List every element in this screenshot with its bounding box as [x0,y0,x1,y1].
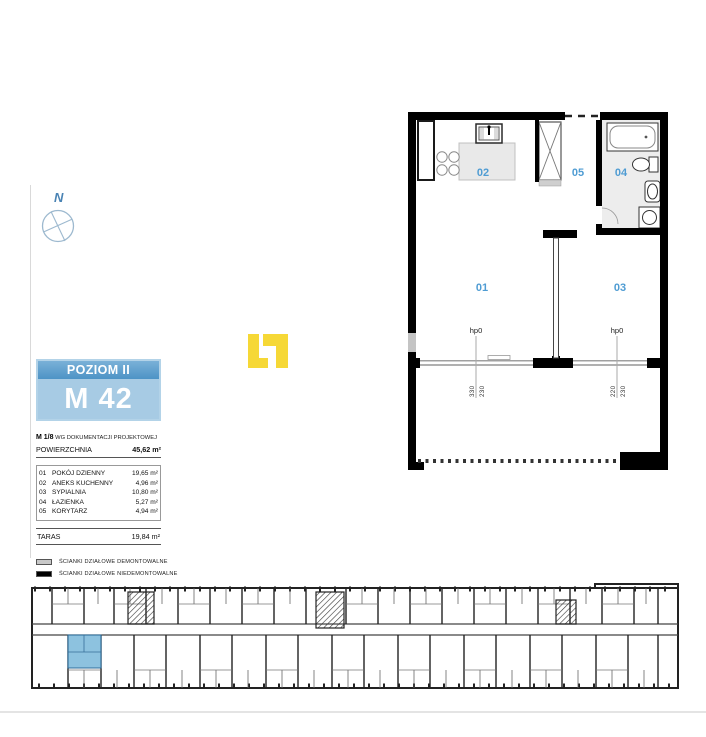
toilet [633,157,659,172]
bottom-divider-line [0,711,706,713]
partition-01-03 [554,238,559,358]
dim-label: 330 [469,385,476,397]
table-row: 05 KORYTARZ 4,94 m² [39,507,158,517]
wardrobe [539,122,561,186]
room-label-02: 02 [477,167,489,179]
terrace-label: TARAS [37,532,60,541]
hp-label: hp0 [611,326,624,335]
washbasin [645,181,660,202]
room-label-04: 04 [615,167,628,179]
room-label-05: 05 [572,167,584,179]
table-row: 01 POKÓJ DZIENNY 19,65 m² [39,469,158,479]
room-no: 02 [39,479,52,489]
room-name: SYPIALNIA [52,488,132,498]
room-name: ANEKS KUCHENNY [52,479,136,489]
doc-note: M 1/8 WG DOKUMENTACJI PROJEKTOWEJ [36,434,161,441]
doc-note-text: WG DOKUMENTACJI PROJEKTOWEJ [54,435,158,441]
room-area: 5,27 m² [136,498,158,508]
sink [476,124,502,143]
room-name: ŁAZIENKA [52,498,136,508]
highlighted-unit-m42 [68,635,101,668]
window-mark-1: hp0 330 230 [469,326,486,398]
stove [437,152,459,175]
room-no: 01 [39,469,52,479]
rooms-table: 01 POKÓJ DZIENNY 19,65 m² 02 ANEKS KUCHE… [36,465,161,521]
total-area-value: 45,62 m² [132,445,161,454]
dim-label: 230 [479,385,486,397]
legend-label: ŚCIANKI DZIAŁOWE DEMONTOWALNE [59,559,168,565]
dim-label: 230 [620,385,627,397]
table-row: 03 SYPIALNIA 10,80 m² [39,488,158,498]
apartment-floorplan: hp0 330 230 hp0 220 230 01 02 03 04 05 [396,100,686,475]
fixed-wall-swatch [36,571,52,577]
legend-item: ŚCIANKI DZIAŁOWE NIEDEMONTOWALNE [36,571,178,577]
window-mark-2: hp0 220 230 [610,326,627,398]
room-name: KORYTARZ [52,507,136,517]
room-label-03: 03 [614,282,626,294]
washing-machine [639,207,660,228]
table-row: 04 ŁAZIENKA 5,27 m² [39,498,158,508]
room-name: POKÓJ DZIENNY [52,469,132,479]
building-overview-plan [28,578,684,692]
balcony-door-detail [488,356,510,360]
demountable-wall-swatch [36,559,52,565]
unit-card-header: POZIOM II M 42 [36,359,161,421]
legend-label: ŚCIANKI DZIAŁOWE NIEDEMONTOWALNE [59,571,178,577]
table-row: 02 ANEKS KUCHENNY 4,96 m² [39,479,158,489]
level-label: POZIOM II [38,361,159,379]
room-no: 04 [39,498,52,508]
terrace-row: TARAS 19,84 m² [36,528,161,545]
room-label-01: 01 [476,282,488,294]
floorplan-sheet: N POZIOM II M 42 M 1/8 WG DOKUMENTACJI P… [0,0,706,737]
room-area: 4,96 m² [136,479,158,489]
room-no: 05 [39,507,52,517]
brand-logo-icon [246,332,290,378]
terrace-area: 19,84 m² [132,532,160,541]
total-area-row: POWIERZCHNIA 45,62 m² [36,445,161,458]
dim-label: 220 [610,385,617,397]
unit-info-card: POZIOM II M 42 M 1/8 WG DOKUMENTACJI PRO… [36,359,161,545]
room-area: 10,80 m² [132,488,158,498]
room-area: 4,94 m² [136,507,158,517]
room-area: 19,65 m² [132,469,158,479]
unit-number-label: M 42 [38,379,159,419]
doc-note-scale: M 1/8 [36,434,54,441]
left-divider-line [30,185,31,558]
room-no: 03 [39,488,52,498]
hp-label: hp0 [470,326,483,335]
legend-item: ŚCIANKI DZIAŁOWE DEMONTOWALNE [36,559,178,565]
compass: N [38,186,80,248]
fridge [418,121,434,180]
compass-north-label: N [54,190,64,205]
total-area-label: POWIERZCHNIA [36,445,92,454]
